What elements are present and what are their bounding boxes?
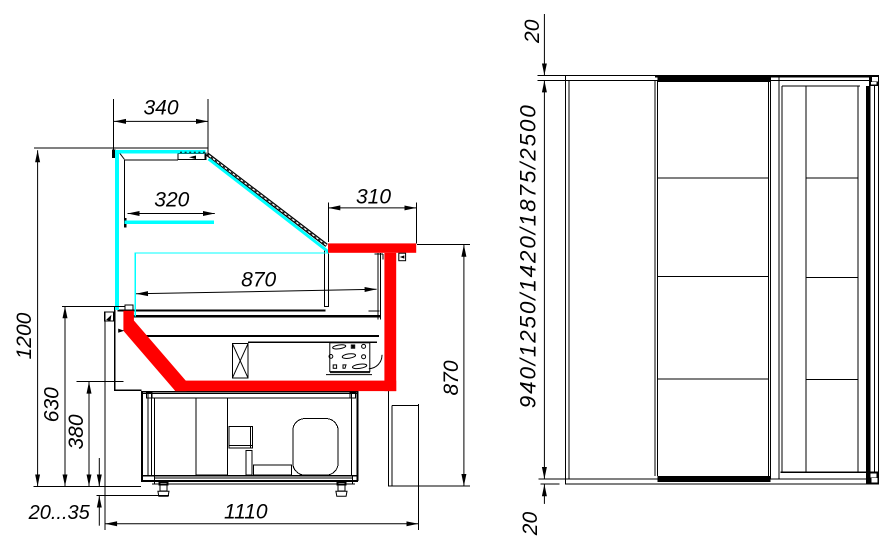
svg-text:870: 870 xyxy=(241,268,276,291)
svg-text:1110: 1110 xyxy=(224,500,268,523)
svg-text:940/1250/1420/1875/2500: 940/1250/1420/1875/2500 xyxy=(516,103,541,408)
svg-text:380: 380 xyxy=(65,414,88,449)
svg-text:870: 870 xyxy=(440,360,463,395)
svg-text:320: 320 xyxy=(154,189,189,212)
svg-text:340: 340 xyxy=(143,97,178,120)
svg-text:20: 20 xyxy=(521,19,544,44)
svg-text:20: 20 xyxy=(519,512,542,537)
svg-text:1200: 1200 xyxy=(13,312,36,359)
svg-text:20...35: 20...35 xyxy=(28,502,91,524)
svg-text:310: 310 xyxy=(356,186,391,209)
svg-text:630: 630 xyxy=(41,387,64,422)
